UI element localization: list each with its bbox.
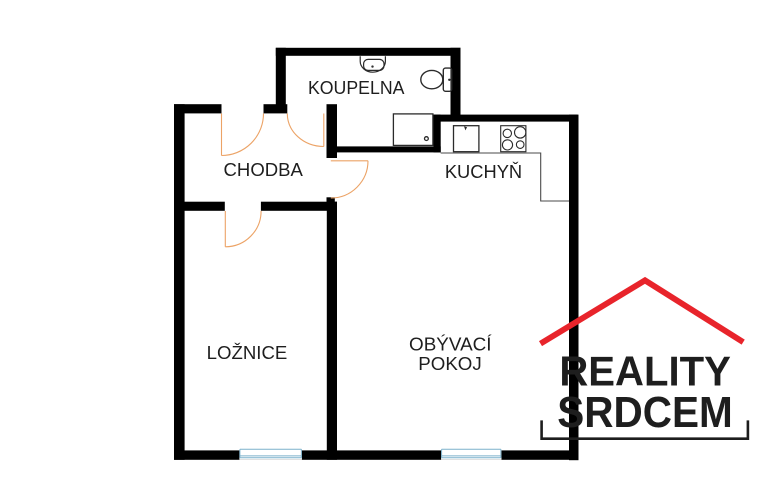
svg-text:OBÝVACÍ: OBÝVACÍ: [409, 334, 492, 355]
svg-text:KUCHYŇ: KUCHYŇ: [445, 162, 522, 182]
svg-text:KOUPELNA: KOUPELNA: [308, 78, 405, 98]
svg-text:LOŽNICE: LOŽNICE: [207, 343, 288, 363]
svg-text:CHODBA: CHODBA: [224, 160, 303, 180]
svg-text:POKOJ: POKOJ: [418, 353, 482, 374]
svg-text:SRDCEM: SRDCEM: [557, 388, 733, 437]
